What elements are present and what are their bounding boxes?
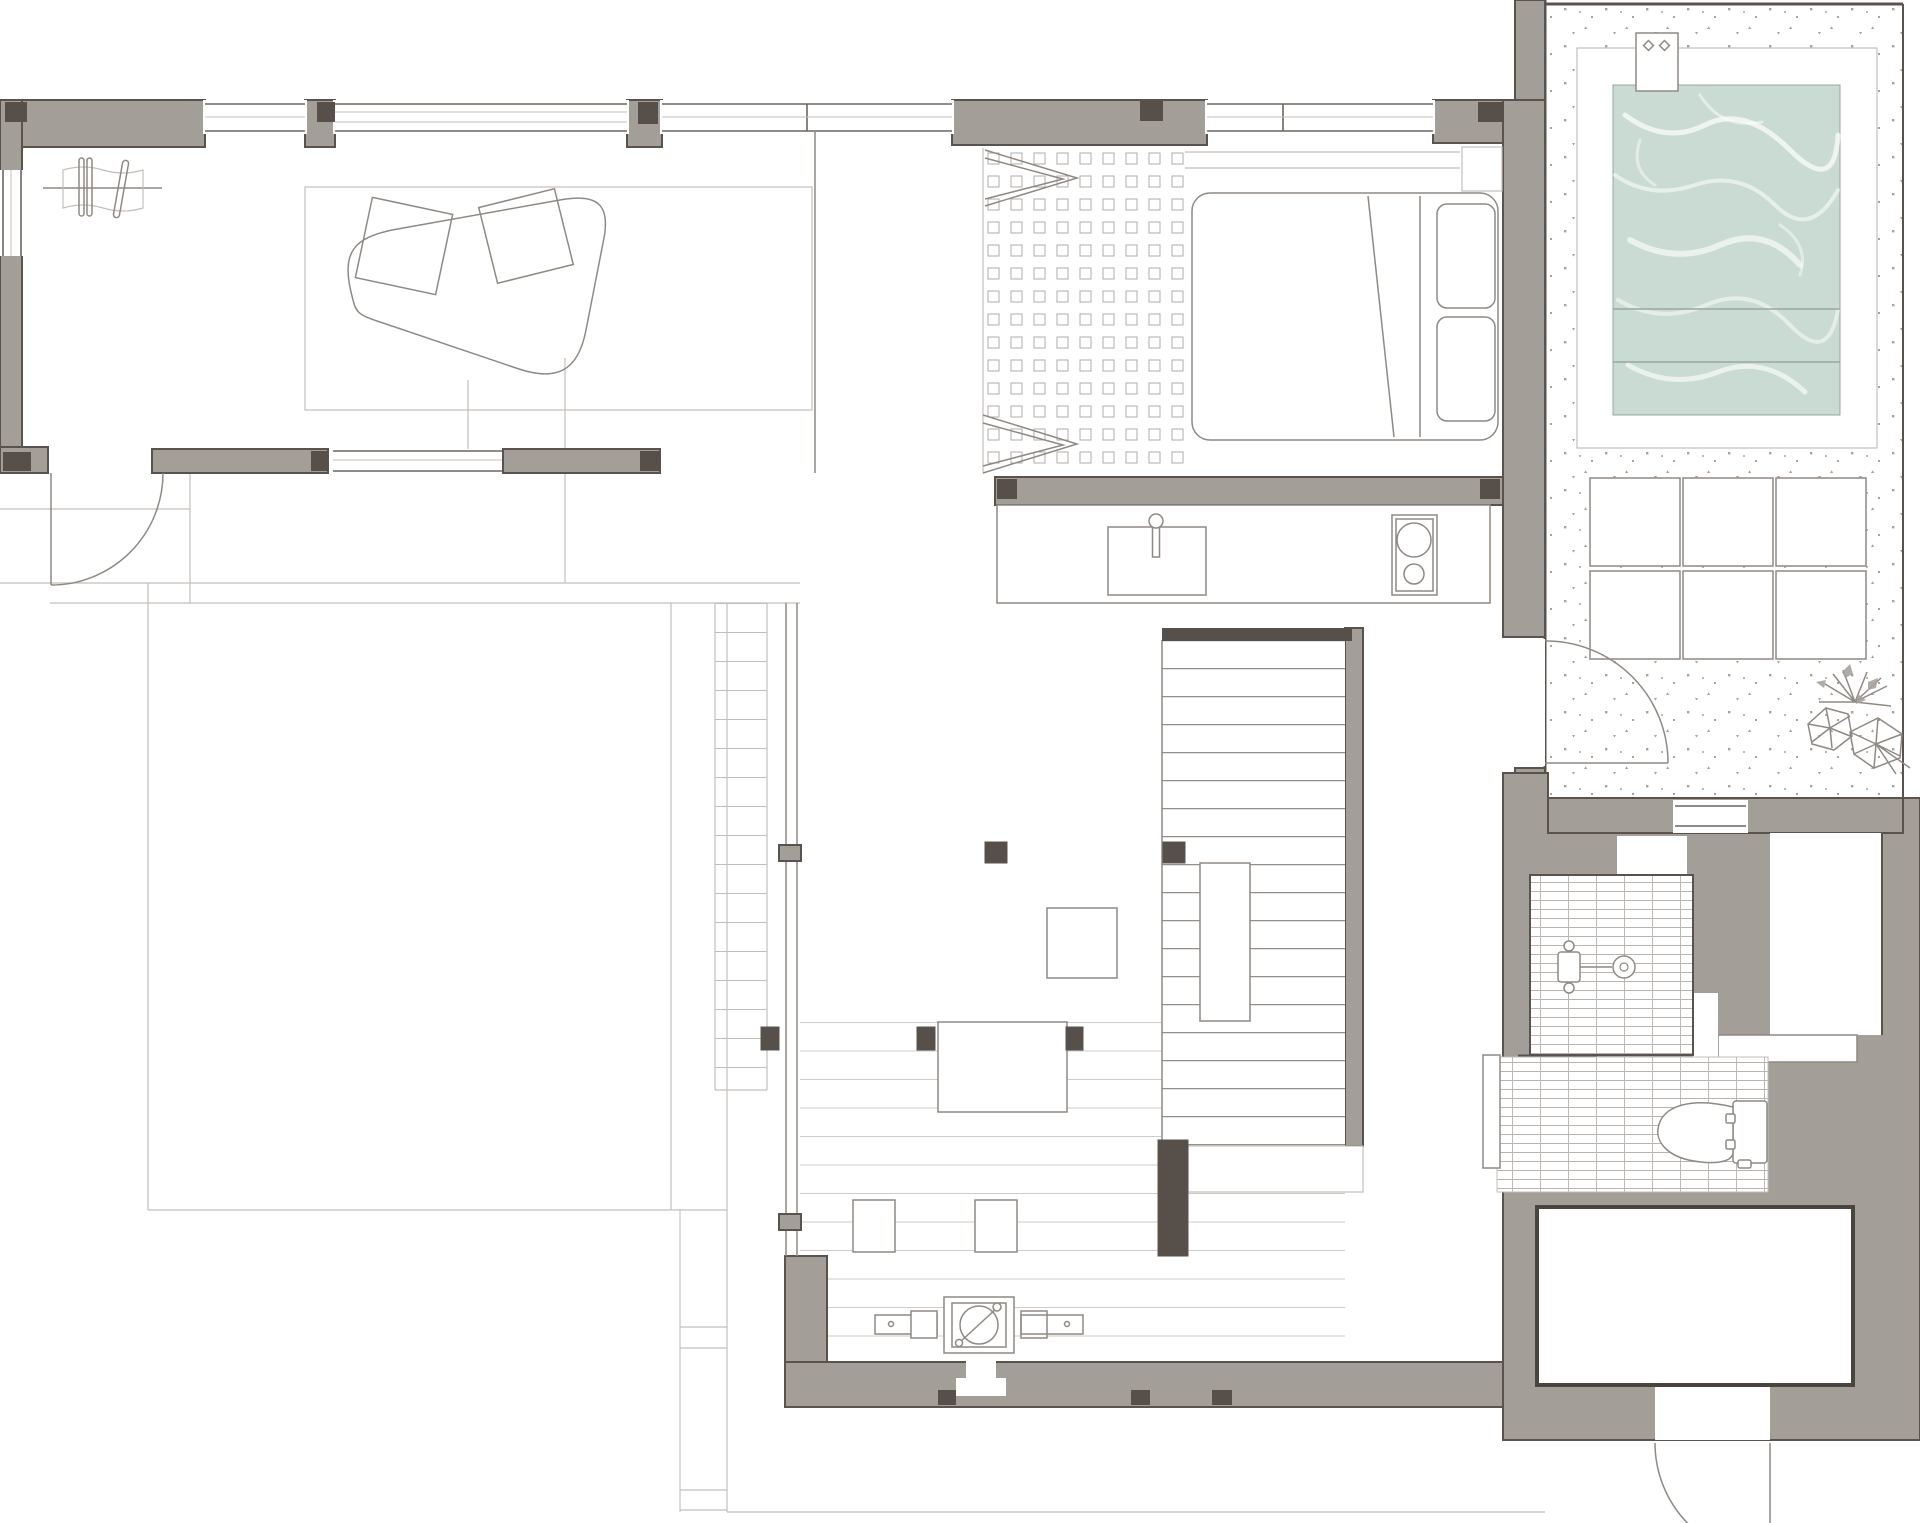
floor-plan-drawing <box>0 0 1920 1523</box>
shower-room <box>1518 875 1693 1056</box>
pillow <box>1437 204 1495 308</box>
stair-wall <box>1345 628 1363 1146</box>
stair-rail <box>1200 863 1250 1021</box>
shower-niche <box>1693 993 1718 1058</box>
deck-table <box>938 1022 1067 1112</box>
storage-room <box>1537 1207 1853 1385</box>
stair-landing <box>1188 1146 1363 1192</box>
rear-door-opening <box>1655 1387 1770 1440</box>
double-bed <box>1192 193 1498 440</box>
walk-in-closet <box>983 148 1185 473</box>
pool-skimmer <box>1636 33 1678 91</box>
stair-top-edge <box>1162 628 1352 641</box>
kitchen-counter <box>997 505 1490 603</box>
deck-steps <box>715 603 767 1090</box>
stove-side-box <box>911 1311 937 1338</box>
window <box>660 100 954 134</box>
window <box>333 100 629 134</box>
pillow <box>1437 317 1495 421</box>
wall-niche <box>1617 836 1687 875</box>
lounge-south-wall <box>152 449 660 473</box>
window <box>1205 100 1435 134</box>
terrace-wall-window <box>1673 800 1748 833</box>
seat-cushion <box>853 1200 895 1252</box>
kitchen-wall <box>995 477 1503 505</box>
window <box>203 100 307 134</box>
nightstand <box>1462 147 1502 191</box>
window <box>330 449 505 473</box>
low-square-table <box>1047 908 1117 978</box>
stair-stringer <box>1158 1140 1188 1256</box>
window-left-wall <box>0 170 24 256</box>
floor-plan-page <box>0 0 1920 1523</box>
seat-cushion <box>975 1200 1017 1252</box>
staircase <box>1158 628 1363 1256</box>
threshold-bench <box>1483 1055 1500 1168</box>
rain-shower-head <box>1613 956 1635 978</box>
side-yard <box>1770 833 1882 1035</box>
pool-terrace <box>1545 0 1910 798</box>
